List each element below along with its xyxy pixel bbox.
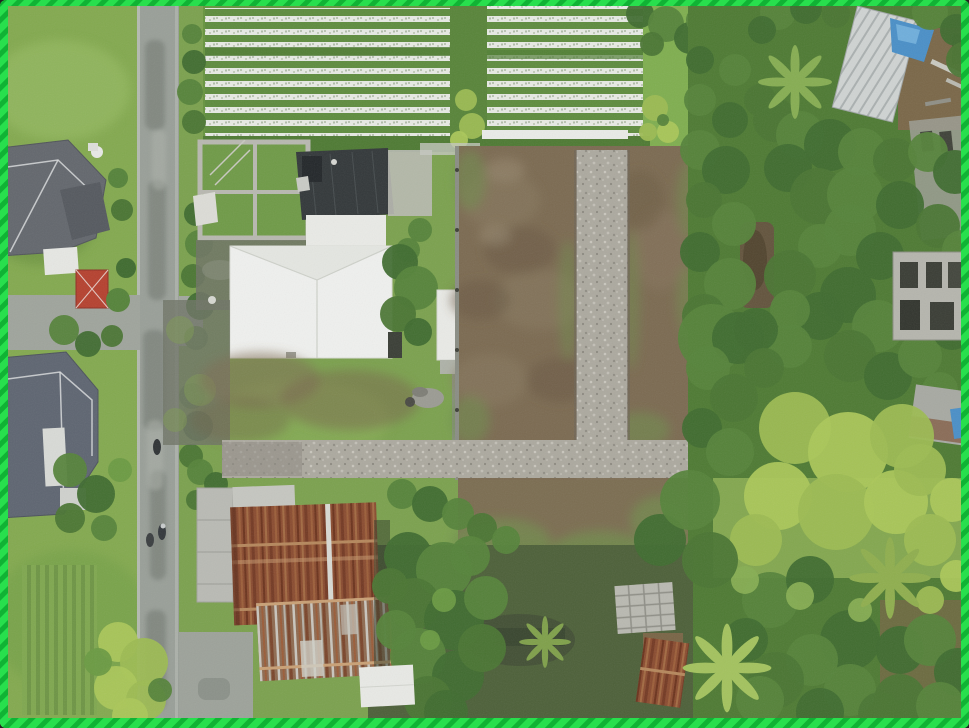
aerial-photo-frame [0, 0, 969, 728]
grain-overlay [0, 0, 969, 728]
screenshot-root [0, 0, 969, 728]
aerial-photo [0, 0, 969, 728]
